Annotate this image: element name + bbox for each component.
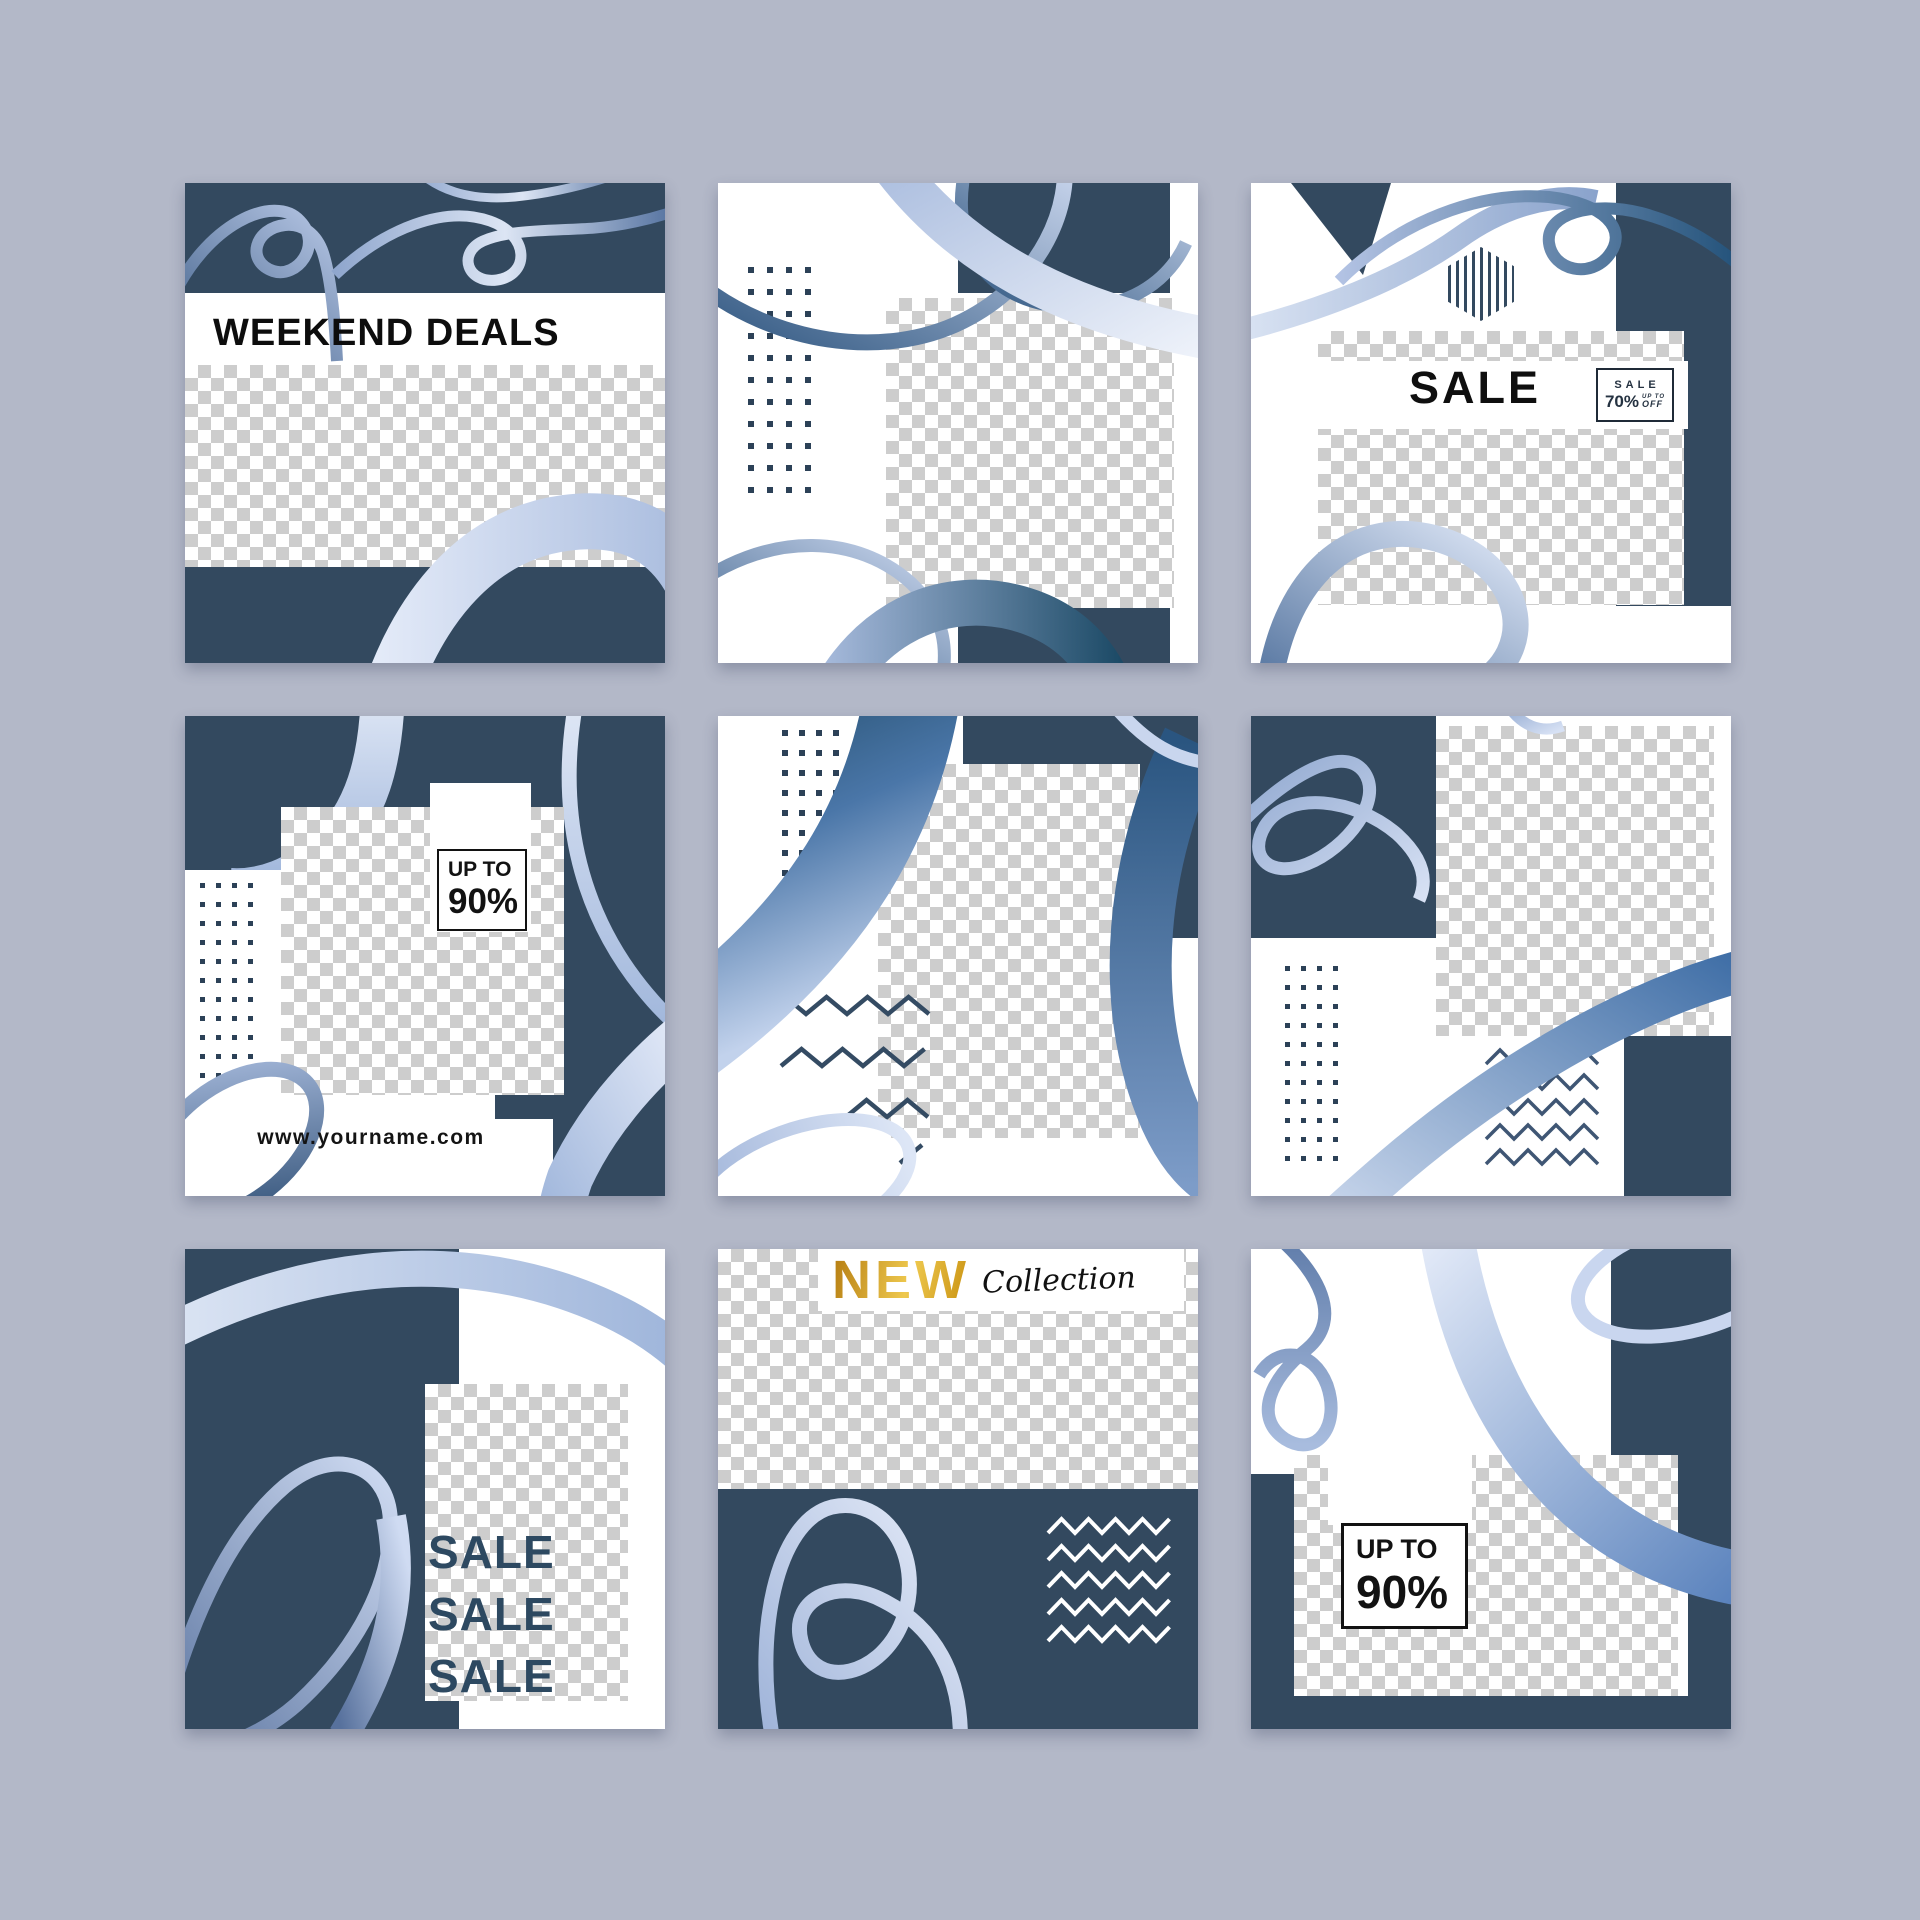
template-card-new-collection: NEW Collection bbox=[718, 1249, 1198, 1729]
navy-block bbox=[1251, 1474, 1294, 1729]
website-url: www.yourname.com bbox=[185, 1126, 557, 1150]
navy-block bbox=[1251, 1696, 1688, 1729]
badge-sale-label: SALE bbox=[1610, 379, 1659, 391]
template-card-up-to-90-left: UP TO 90% www.yourname.com bbox=[185, 716, 665, 1196]
sale-line: SALE bbox=[428, 1583, 555, 1645]
badge-percent: 90% bbox=[1356, 1565, 1465, 1619]
badge-up-to: UP TO bbox=[1356, 1534, 1465, 1565]
sale-line: SALE bbox=[428, 1521, 555, 1583]
sale-line: SALE bbox=[428, 1645, 555, 1707]
badge-up-to: UP TO bbox=[448, 858, 525, 882]
template-card-weekend-deals: WEEKEND DEALS bbox=[185, 183, 665, 663]
template-card-up-to-90-right: UP TO 90% bbox=[1251, 1249, 1731, 1729]
badge-off: OFF bbox=[1642, 400, 1663, 409]
sale-stack-text: SALE SALE SALE bbox=[428, 1521, 555, 1707]
template-card-sale-70: SALE SALE 70% UP TO OFF bbox=[1251, 183, 1731, 663]
template-card-sale-stack: SALE SALE SALE bbox=[185, 1249, 665, 1729]
badge-percent: 70% bbox=[1605, 392, 1639, 412]
badge-percent: 90% bbox=[448, 882, 525, 922]
dots-pattern bbox=[748, 267, 811, 493]
navy-triangle bbox=[1291, 183, 1391, 275]
weekend-deals-title: WEEKEND DEALS bbox=[213, 301, 560, 365]
sale-70-badge: SALE 70% UP TO OFF bbox=[1596, 368, 1674, 422]
template-grid: WEEKEND DEALS bbox=[0, 0, 1920, 1920]
navy-block bbox=[1688, 1571, 1731, 1729]
template-card-abstract-checker bbox=[1251, 716, 1731, 1196]
navy-block bbox=[958, 607, 1170, 663]
zigzag-pattern bbox=[718, 1249, 1198, 1729]
up-to-90-badge: UP TO 90% bbox=[1341, 1523, 1468, 1629]
image-placeholder-checker bbox=[886, 298, 1174, 608]
zigzag-pattern bbox=[718, 716, 1198, 1196]
striped-hexagon bbox=[1448, 247, 1514, 321]
template-card-abstract-dots bbox=[718, 183, 1198, 663]
sale-headline: SALE bbox=[1409, 362, 1541, 414]
navy-block bbox=[185, 1249, 459, 1729]
dots-pattern bbox=[200, 883, 253, 1078]
image-placeholder-checker bbox=[185, 365, 665, 567]
up-to-90-badge: UP TO 90% bbox=[437, 849, 527, 931]
template-card-abstract-zigzag bbox=[718, 716, 1198, 1196]
navy-block bbox=[958, 183, 1170, 293]
badge-backdrop bbox=[1328, 1455, 1472, 1525]
zigzag-pattern bbox=[1251, 716, 1731, 1196]
